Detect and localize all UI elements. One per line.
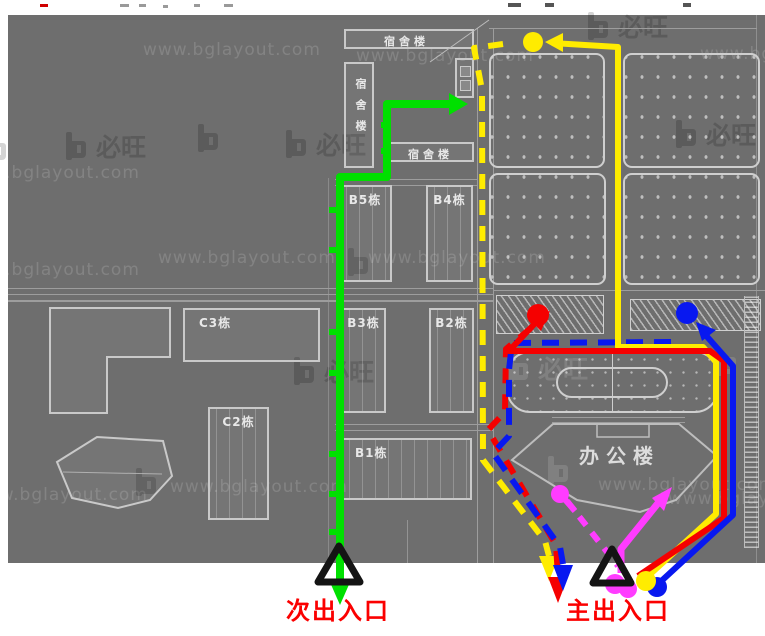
route-green-notch bbox=[329, 451, 336, 457]
route-green-notch bbox=[329, 491, 336, 497]
route-green-notch bbox=[329, 529, 336, 535]
routes-overlay bbox=[0, 0, 765, 636]
route-green bbox=[340, 104, 450, 582]
route-yellow-entry-arrowhead bbox=[545, 33, 563, 52]
route-green-notch bbox=[329, 370, 336, 376]
route-yellow-exit-dashed bbox=[474, 44, 549, 556]
site-plan-screenshot: www.bglayout.com www.bglayout.com www.bg… bbox=[0, 0, 765, 636]
muster-point-yellow bbox=[523, 32, 543, 52]
route-red-exit-dashed bbox=[488, 328, 558, 576]
route-green-notch bbox=[329, 247, 336, 253]
route-green-notch bbox=[329, 207, 336, 213]
route-green-notch bbox=[381, 148, 387, 154]
route-green-notch bbox=[329, 329, 336, 335]
route-green-notch bbox=[381, 122, 387, 128]
entrance-point-yellow bbox=[636, 571, 656, 591]
muster-point-magenta bbox=[551, 485, 569, 503]
muster-point-red bbox=[527, 304, 549, 326]
building-d2-outline bbox=[50, 308, 170, 413]
route-green-arrowhead-right bbox=[449, 93, 468, 115]
office-inner-structure bbox=[597, 424, 649, 437]
muster-point-blue bbox=[676, 302, 698, 324]
site-boundary-line bbox=[430, 20, 489, 62]
route-red-entry bbox=[509, 318, 724, 576]
